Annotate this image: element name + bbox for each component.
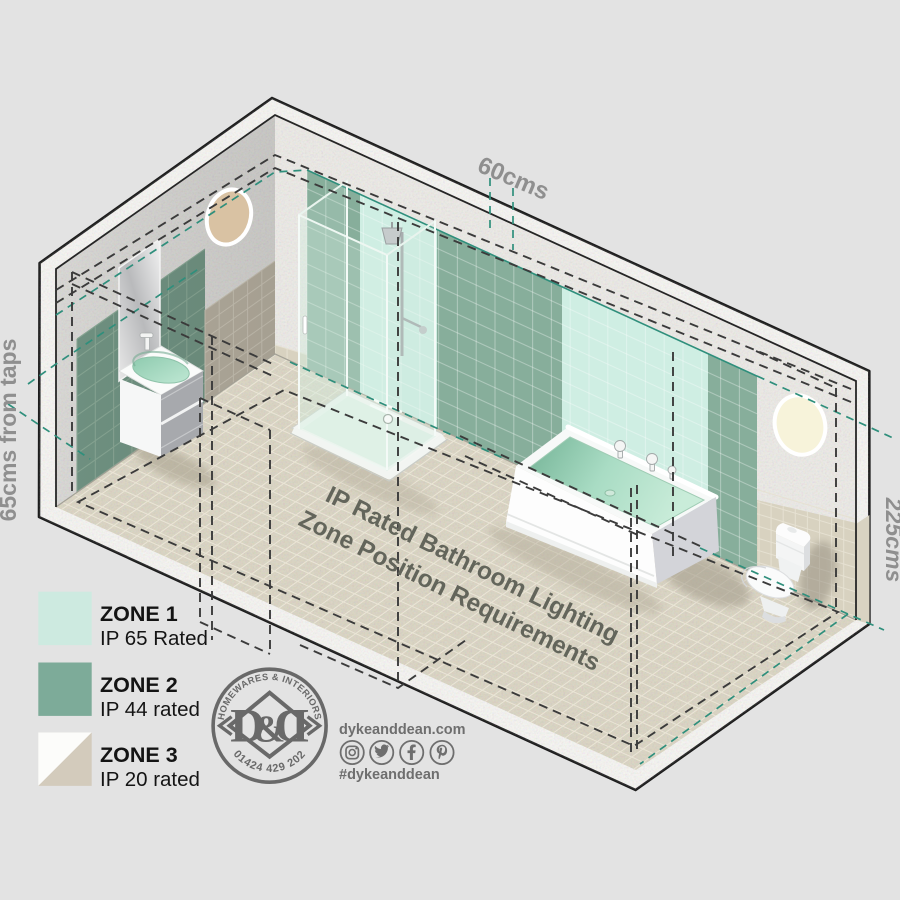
svg-text:IP 44 rated: IP 44 rated	[100, 698, 200, 721]
svg-text:#dykeanddean: #dykeanddean	[339, 767, 440, 783]
svg-text:225cms: 225cms	[881, 497, 900, 582]
svg-text:IP 65 Rated: IP 65 Rated	[100, 627, 208, 650]
svg-text:ZONE 3: ZONE 3	[100, 743, 178, 767]
svg-text:IP 20 rated: IP 20 rated	[100, 768, 200, 791]
svg-text:65cms from taps: 65cms from taps	[0, 339, 21, 522]
svg-text:dykeanddean.com: dykeanddean.com	[339, 722, 466, 738]
svg-text:&: &	[254, 709, 286, 751]
svg-text:ZONE 1: ZONE 1	[100, 602, 178, 626]
svg-text:ZONE 2: ZONE 2	[100, 673, 178, 697]
